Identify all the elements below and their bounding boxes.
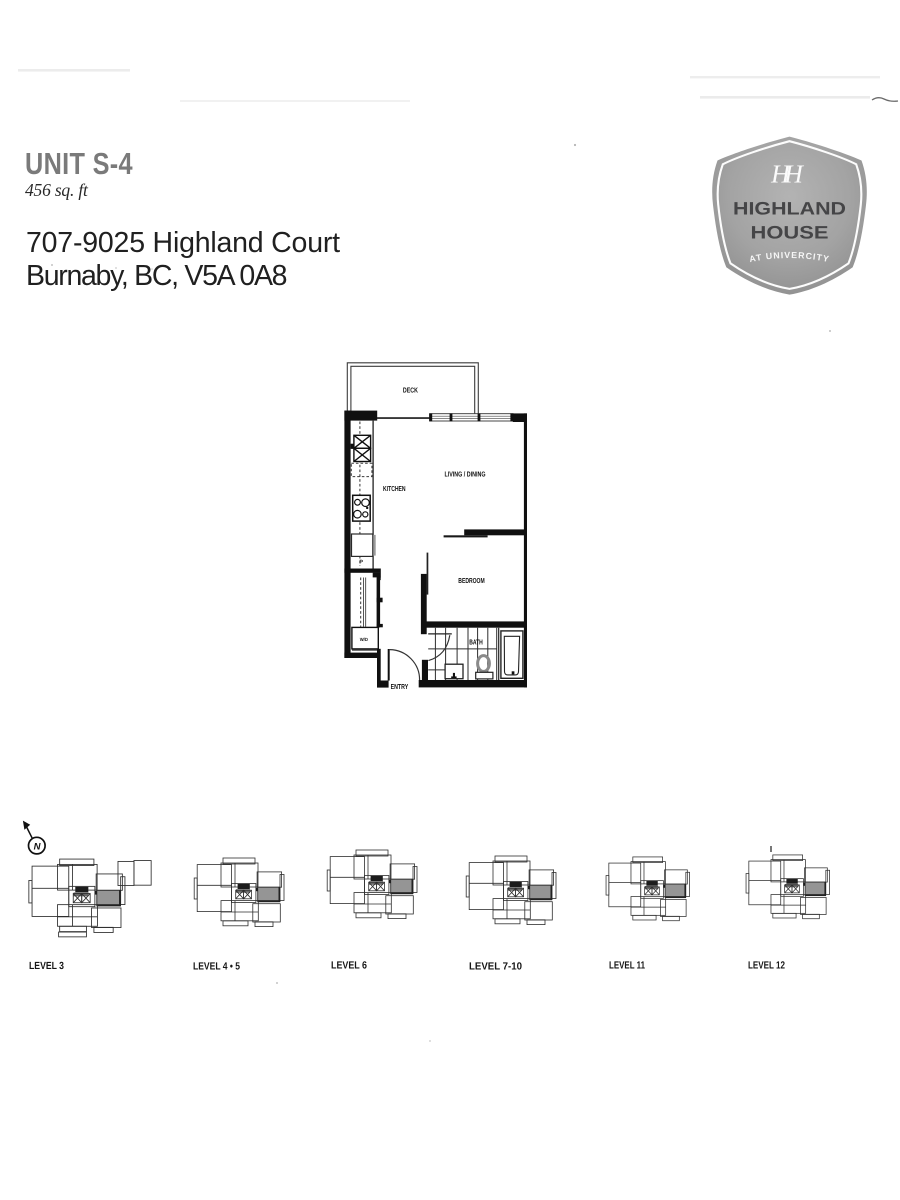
svg-text:W/D: W/D <box>360 637 369 642</box>
svg-text:LIVING / DINING: LIVING / DINING <box>445 469 486 478</box>
svg-text:N: N <box>34 842 42 853</box>
svg-text:KITCHEN: KITCHEN <box>383 484 406 493</box>
svg-text:BEDROOM: BEDROOM <box>458 576 484 585</box>
svg-text:LEVEL 11: LEVEL 11 <box>609 961 645 972</box>
svg-text:P: P <box>359 559 363 565</box>
svg-text:BATH: BATH <box>469 637 483 646</box>
svg-text:LEVEL 7-10: LEVEL 7-10 <box>469 962 522 973</box>
svg-text:LEVEL 3: LEVEL 3 <box>29 961 64 972</box>
svg-text:HOUSE: HOUSE <box>751 223 829 243</box>
svg-text:ENTRY: ENTRY <box>391 682 409 691</box>
svg-text:LEVEL 6: LEVEL 6 <box>331 961 367 972</box>
svg-text:LEVEL 12: LEVEL 12 <box>748 961 785 972</box>
svg-text:HIGHLAND: HIGHLAND <box>733 199 846 219</box>
svg-text:LEVEL 4 • 5: LEVEL 4 • 5 <box>193 962 240 973</box>
svg-text:H: H <box>783 160 804 189</box>
svg-text:DECK: DECK <box>403 385 419 394</box>
